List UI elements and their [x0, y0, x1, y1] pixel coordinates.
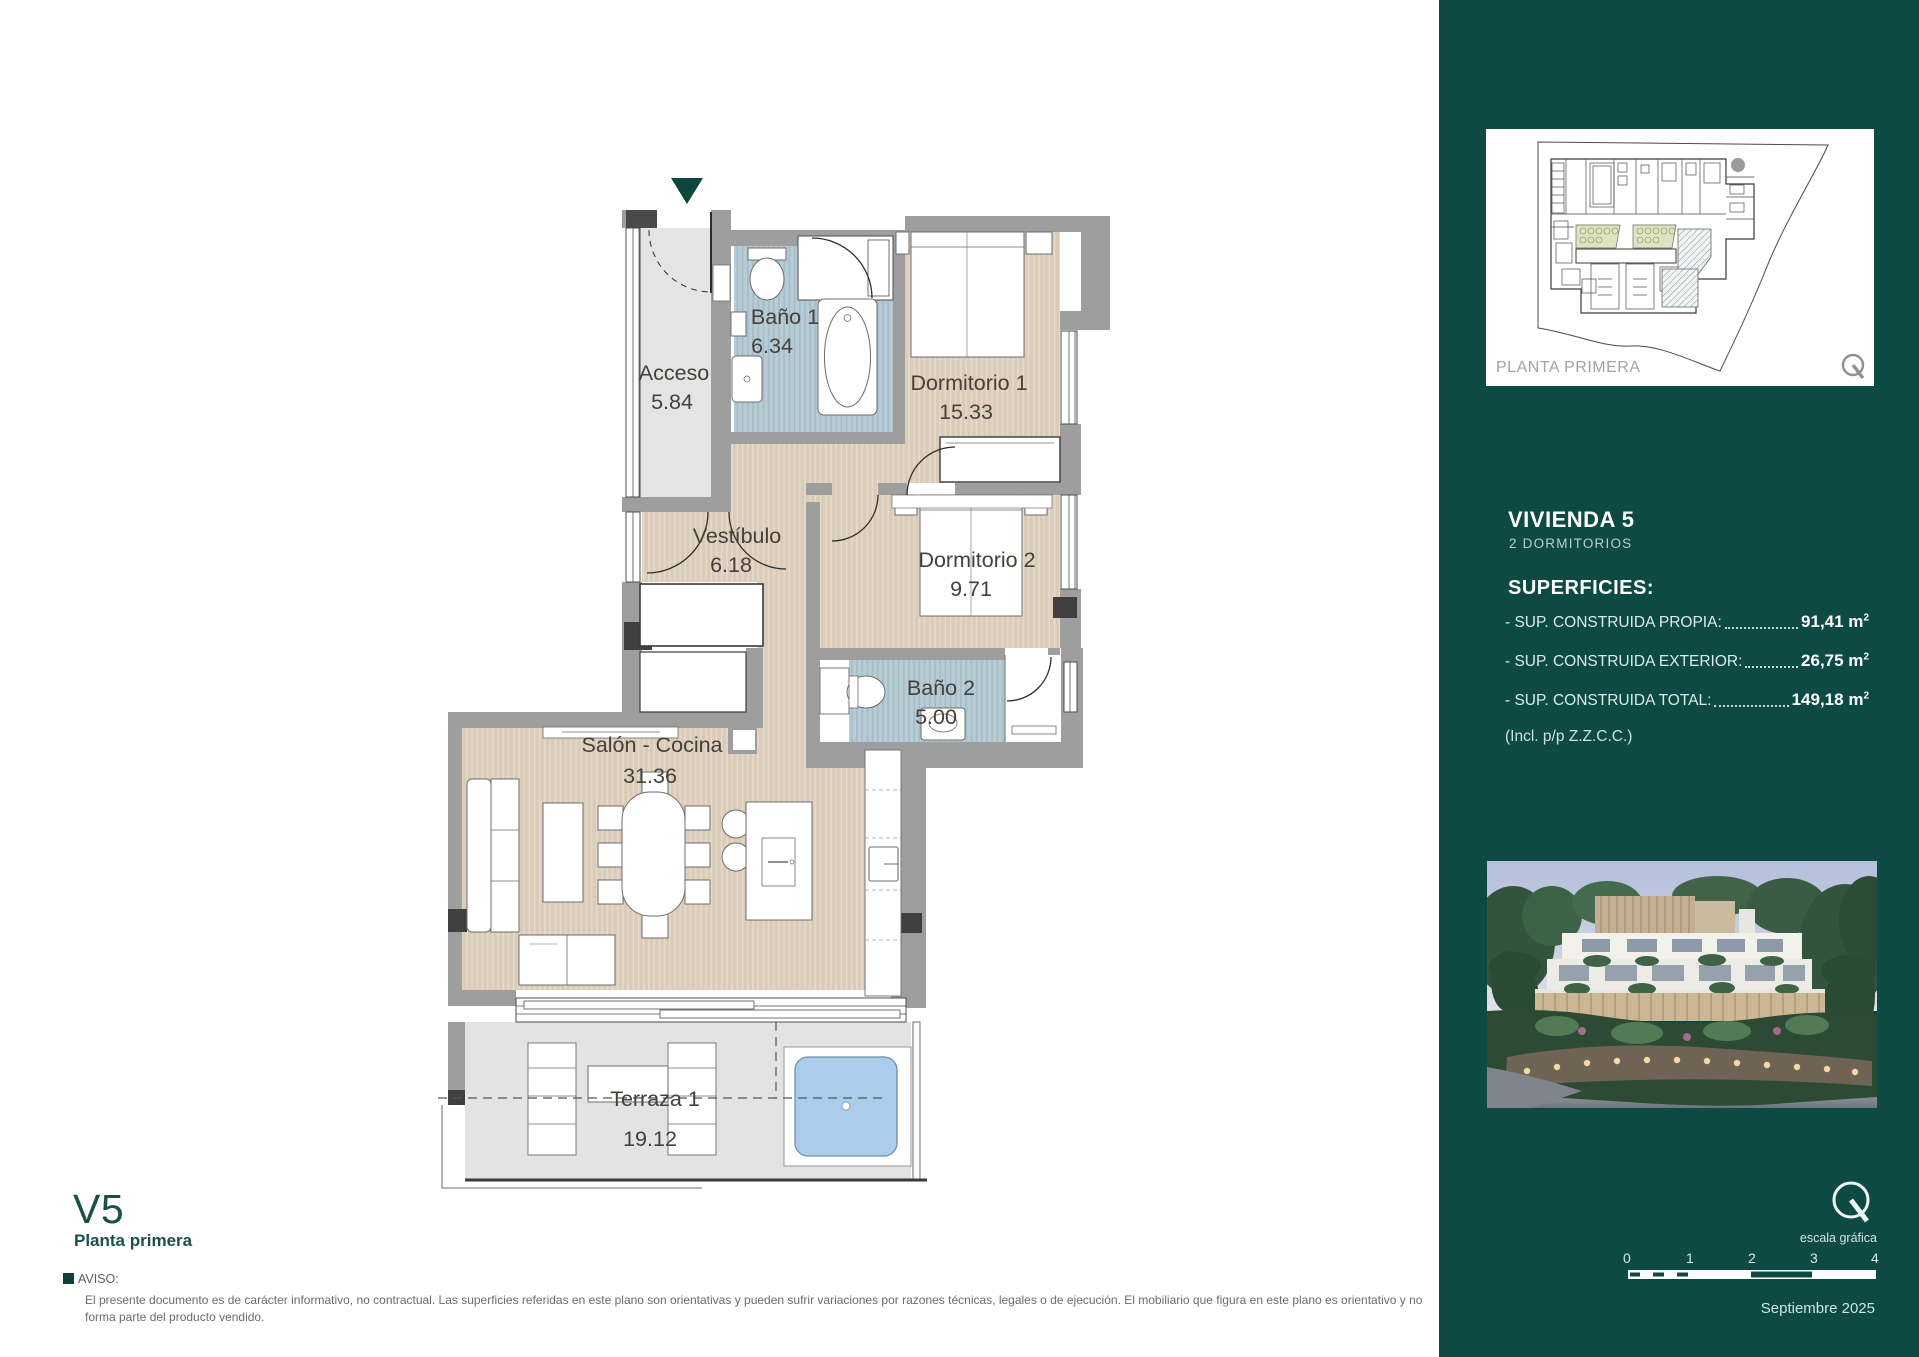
svg-text:15.33: 15.33	[939, 400, 993, 424]
svg-text:19.12: 19.12	[623, 1127, 677, 1151]
svg-text:5.84: 5.84	[651, 390, 693, 414]
svg-text:Baño 1: Baño 1	[751, 305, 819, 329]
svg-text:Vestíbulo: Vestíbulo	[693, 524, 781, 548]
svg-text:6.34: 6.34	[751, 334, 793, 358]
svg-text:Baño 2: Baño 2	[907, 676, 975, 700]
svg-text:6.18: 6.18	[710, 553, 752, 577]
svg-text:Salón - Cocina: Salón - Cocina	[581, 733, 722, 757]
svg-text:Acceso: Acceso	[639, 361, 710, 385]
svg-text:Dormitorio 1: Dormitorio 1	[910, 371, 1027, 395]
svg-text:31.36: 31.36	[623, 764, 677, 788]
svg-text:9.71: 9.71	[950, 577, 992, 601]
svg-text:Terraza 1: Terraza 1	[610, 1087, 700, 1111]
svg-text:5.00: 5.00	[915, 705, 957, 729]
svg-text:Dormitorio 2: Dormitorio 2	[918, 548, 1035, 572]
